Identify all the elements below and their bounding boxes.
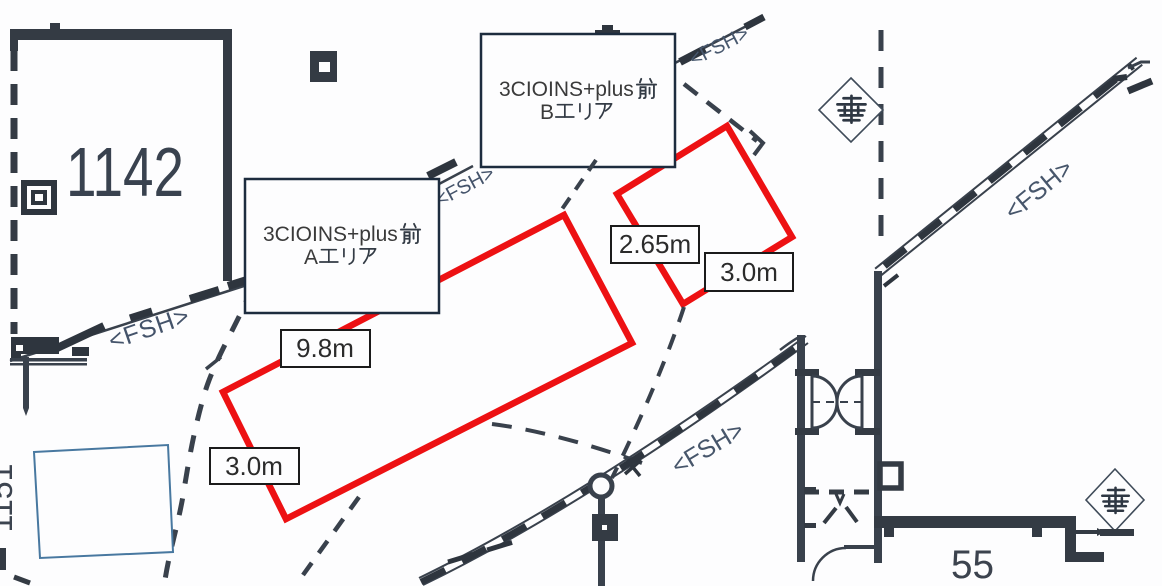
svg-text:3CIOINS+plus: 3CIOINS+plus: [499, 78, 634, 101]
svg-text:2.65m: 2.65m: [619, 229, 691, 259]
svg-text:3CIOINS+plus: 3CIOINS+plus: [263, 223, 398, 246]
svg-text:1142: 1142: [66, 133, 184, 211]
svg-text:B: B: [540, 101, 554, 124]
svg-text:3.0m: 3.0m: [225, 451, 283, 481]
svg-text:55: 55: [951, 543, 994, 586]
svg-text:A: A: [304, 246, 318, 269]
svg-text:9.8m: 9.8m: [296, 333, 354, 363]
svg-text:3.0m: 3.0m: [720, 257, 778, 287]
svg-text:1151: 1151: [0, 464, 19, 533]
